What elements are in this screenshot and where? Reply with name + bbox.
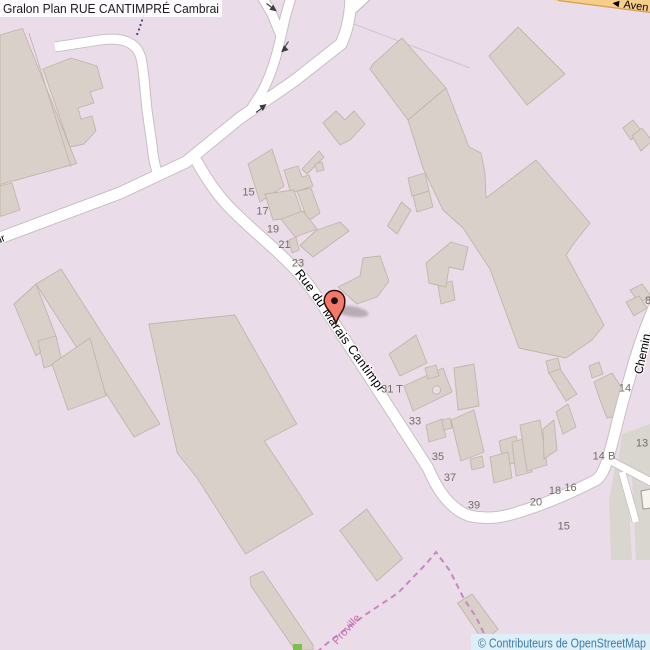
svg-text:15: 15 — [242, 187, 254, 199]
svg-text:Gralon Plan RUE CANTIMPRÉ Camb: Gralon Plan RUE CANTIMPRÉ Cambrai — [3, 1, 219, 16]
svg-text:13: 13 — [636, 438, 648, 450]
svg-text:33: 33 — [409, 416, 421, 428]
svg-text:© Contributeurs de OpenStreetM: © Contributeurs de OpenStreetMap — [478, 637, 646, 650]
svg-text:35: 35 — [432, 451, 444, 463]
svg-text:21: 21 — [278, 239, 290, 251]
svg-text:18: 18 — [549, 485, 561, 497]
svg-text:20: 20 — [530, 497, 542, 509]
svg-text:8: 8 — [645, 295, 650, 307]
svg-text:17: 17 — [256, 206, 268, 218]
svg-text:31 T: 31 T — [381, 384, 403, 396]
svg-text:39: 39 — [468, 500, 480, 512]
svg-text:15: 15 — [558, 521, 570, 533]
svg-text:14 B: 14 B — [593, 451, 616, 463]
svg-text:14: 14 — [619, 383, 631, 395]
svg-text:23: 23 — [292, 258, 304, 270]
svg-text:19: 19 — [267, 224, 279, 236]
svg-text:16: 16 — [564, 482, 576, 494]
svg-text:37: 37 — [444, 472, 456, 484]
